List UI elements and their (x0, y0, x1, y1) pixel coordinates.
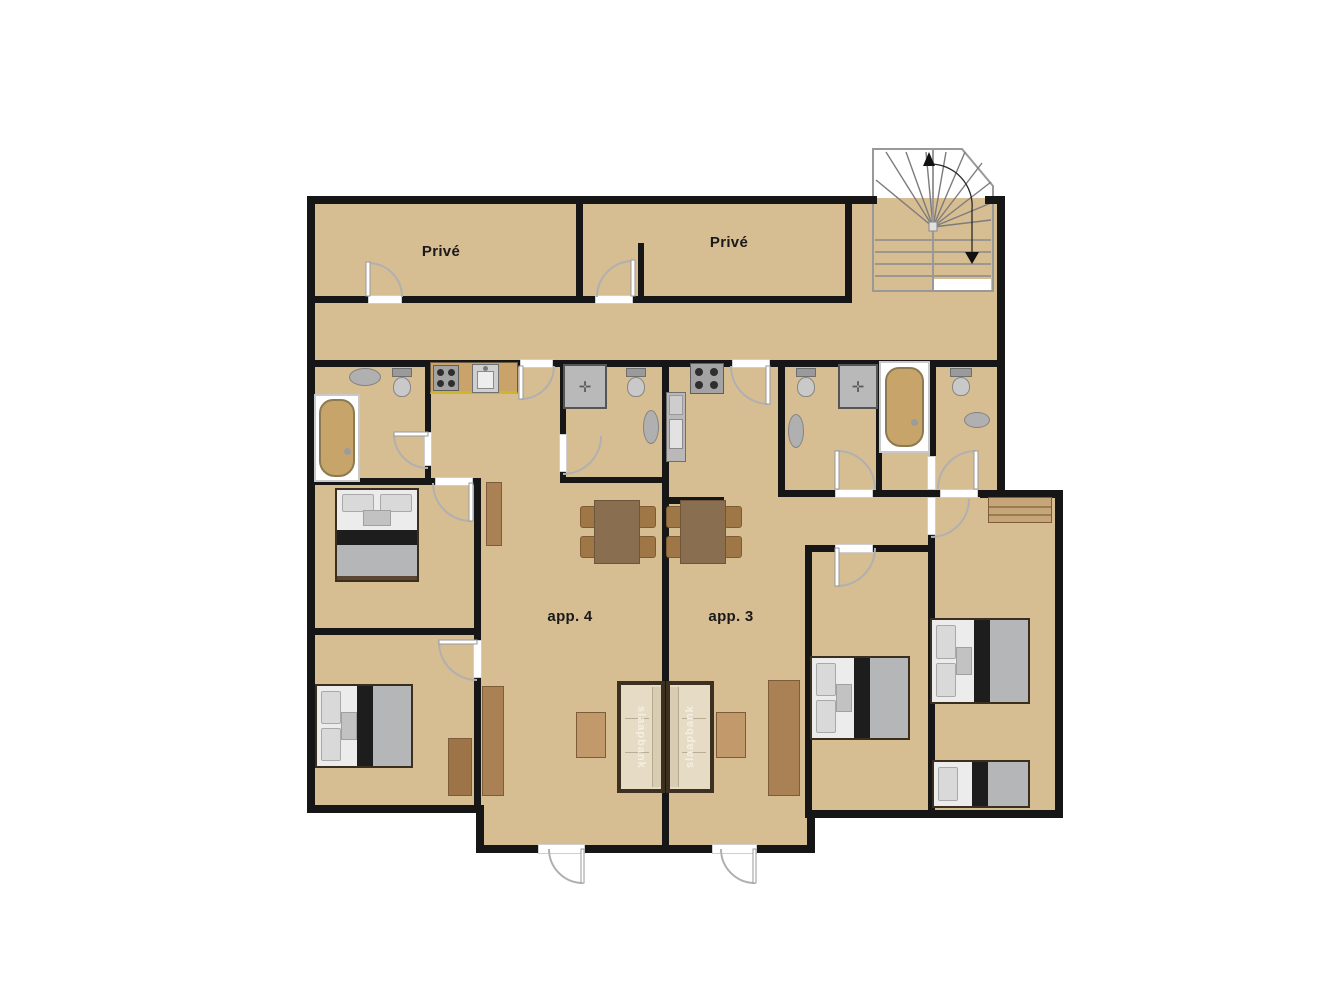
bed-bedroom3 (810, 656, 910, 740)
door-leaf-prive-left (366, 262, 370, 296)
sofa-bed-app3: slaapbank (666, 681, 714, 793)
door-leaf-bath1 (394, 432, 428, 436)
sink-bath1-icon (349, 368, 381, 386)
sofa-bed-app4-label: slaapbank (621, 685, 661, 789)
bed-bedroom1 (335, 488, 419, 582)
door-arc-shower4 (563, 436, 601, 474)
apartment-label-app-3: app. 3 (681, 608, 781, 625)
stove-app3-icon (690, 363, 724, 394)
coffee-table-app3 (716, 712, 746, 758)
dining-set-app4 (580, 500, 660, 568)
kitchen-counter-app3 (666, 392, 686, 462)
door-arc-bedroom2 (439, 642, 477, 680)
cabinet-app4-lower (482, 686, 504, 796)
bed-bedroom4-double (930, 618, 1030, 704)
dining-set-app3 (666, 500, 746, 568)
door-leaf-vestibule (631, 260, 635, 296)
door-arc-bedroom3 (837, 548, 875, 586)
stove-app4-icon (433, 365, 459, 391)
cabinet-app3 (768, 680, 800, 796)
door-arc-front-app3 (721, 849, 755, 883)
door-leaf-bedroom3 (835, 548, 839, 586)
shelf-bedroom4 (988, 497, 1052, 523)
door-arc-app4-entry (521, 366, 554, 399)
door-arc-shower3 (837, 451, 875, 489)
door-leaf-bedroom2 (439, 640, 477, 644)
door-arc-front-app4 (549, 849, 583, 883)
door-leaf-toilet-room (974, 451, 978, 489)
bathtub-app3 (879, 361, 930, 453)
door-arc-vestibule (597, 261, 633, 297)
floor-plan: ✛ ✛ (0, 0, 1333, 1000)
door-leaf-bedroom1 (469, 483, 473, 521)
door-arc-toilet-room (938, 451, 976, 489)
bed-bedroom4-single (932, 760, 1030, 808)
door-arc-bedroom4 (931, 499, 969, 537)
bed-bedroom2 (315, 684, 413, 768)
sink-shower-room-app4-icon (643, 410, 659, 444)
bathtub-app4 (314, 394, 360, 482)
sink-shower-room-app3-icon (788, 414, 804, 448)
cabinet-app4-upper (486, 482, 502, 546)
door-arc-app3-entry (731, 366, 769, 404)
door-arc-bath1 (394, 434, 428, 468)
coffee-table-app4 (576, 712, 606, 758)
kitchen-sink-app4-icon (472, 364, 499, 393)
door-arc-bedroom1 (433, 483, 471, 521)
door-leaf-front-app4 (581, 849, 584, 883)
sink-wc-room-icon (964, 412, 990, 428)
apartment-label-app-4: app. 4 (520, 608, 620, 625)
sofa-bed-app3-label: slaapbank (670, 685, 710, 789)
room-label-prive-left: Privé (391, 243, 491, 260)
door-leaf-app3-entry (766, 366, 770, 404)
shower-app3-icon: ✛ (838, 364, 878, 409)
door-leaf-shower3 (835, 451, 839, 489)
door-arc-prive-left (368, 263, 402, 297)
wardrobe-bedroom2 (448, 738, 472, 796)
door-leaf-front-app3 (753, 849, 756, 883)
room-label-prive-right: Privé (679, 234, 779, 251)
shower-app4-icon: ✛ (563, 364, 607, 409)
sofa-bed-app4: slaapbank (617, 681, 665, 793)
door-leaf-app4-entry (519, 366, 523, 399)
